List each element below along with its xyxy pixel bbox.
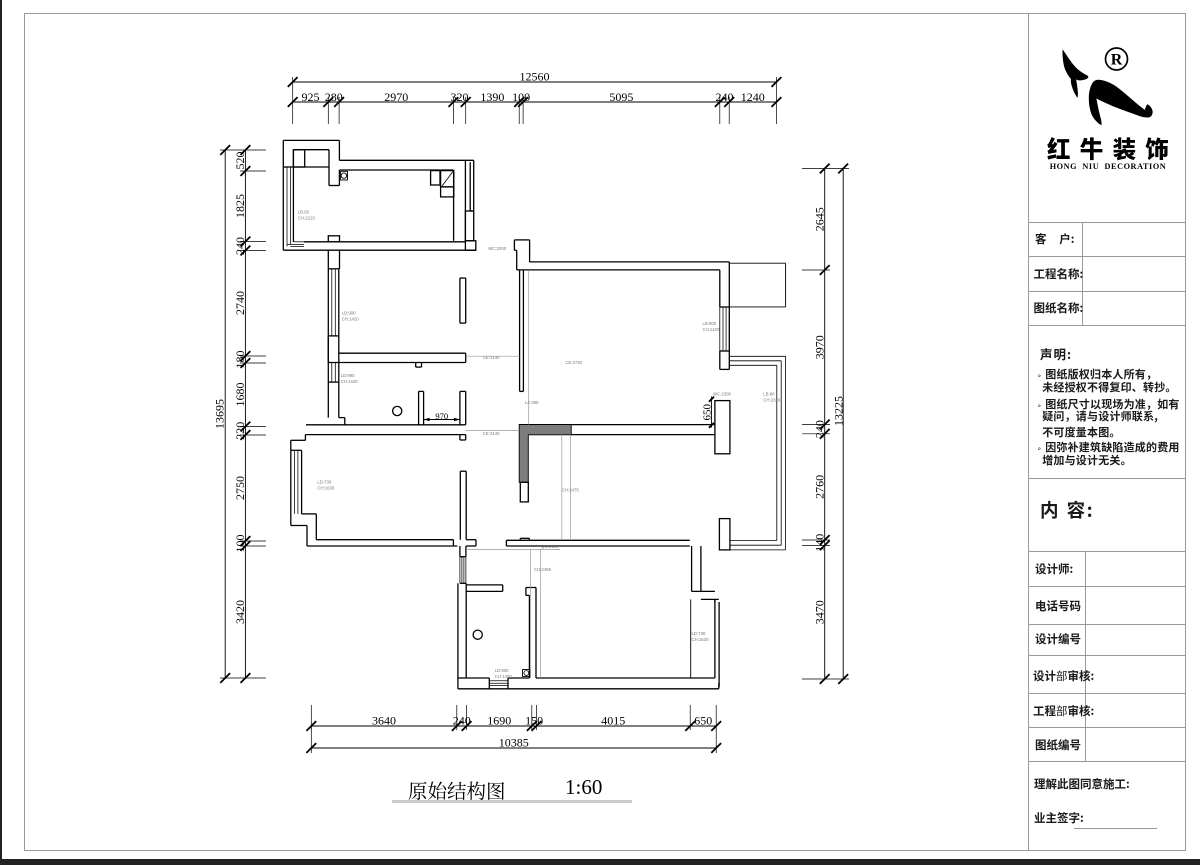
svg-text:3640: 3640 (372, 714, 396, 728)
svg-text:4015: 4015 (601, 714, 625, 728)
svg-text:CH:1400: CH:1400 (495, 674, 513, 679)
svg-text:220: 220 (233, 422, 247, 440)
svg-text:280: 280 (325, 90, 343, 104)
svg-text:520: 520 (233, 152, 247, 170)
svg-text:LB:90: LB:90 (763, 392, 775, 397)
svg-text:1240: 1240 (741, 90, 765, 104)
svg-text:100: 100 (233, 535, 247, 553)
svg-text:WC:2300: WC:2300 (713, 392, 732, 397)
svg-text:CH:2475: CH:2475 (562, 488, 580, 493)
svg-text:180: 180 (233, 351, 247, 369)
svg-text:CH:1420: CH:1420 (703, 327, 721, 332)
svg-text:3470: 3470 (813, 600, 827, 624)
svg-text:925: 925 (302, 90, 320, 104)
svg-text:CH:2210: CH:2210 (298, 216, 316, 221)
svg-text:140: 140 (813, 534, 827, 552)
svg-text:3970: 3970 (813, 335, 827, 359)
svg-text:CH:1420: CH:1420 (342, 317, 360, 322)
svg-text:100: 100 (512, 90, 530, 104)
svg-text:CH:1630: CH:1630 (317, 485, 335, 490)
svg-text:CH:1420: CH:1420 (341, 379, 359, 384)
svg-text:650: 650 (694, 714, 712, 728)
svg-text:2750: 2750 (233, 476, 247, 500)
svg-text:WC:2000: WC:2000 (488, 246, 507, 251)
svg-text:1690: 1690 (487, 714, 511, 728)
svg-text:LD:730: LD:730 (317, 479, 331, 484)
svg-text:QC:2130: QC:2130 (541, 544, 559, 549)
svg-text:650: 650 (702, 404, 714, 421)
svg-text:10385: 10385 (499, 736, 529, 750)
svg-text:150: 150 (525, 714, 543, 728)
svg-text:3420: 3420 (233, 600, 247, 624)
svg-text:240: 240 (813, 420, 827, 438)
svg-text:CE:3140: CE:3140 (483, 431, 500, 436)
svg-text:5095: 5095 (609, 90, 633, 104)
svg-text:CE:2730: CE:2730 (565, 360, 582, 365)
svg-text:LD:900: LD:900 (342, 311, 356, 316)
svg-text:240: 240 (233, 237, 247, 255)
svg-text:LB:50: LB:50 (298, 210, 310, 215)
svg-text:320: 320 (451, 90, 469, 104)
svg-text:2740: 2740 (233, 291, 247, 315)
svg-text:LD:730: LD:730 (692, 631, 706, 636)
svg-text:13225: 13225 (832, 396, 846, 426)
svg-text:240: 240 (453, 714, 471, 728)
svg-text:LD:990: LD:990 (341, 373, 355, 378)
svg-text:2760: 2760 (813, 475, 827, 499)
svg-text:970: 970 (435, 411, 448, 421)
svg-text:1825: 1825 (233, 194, 247, 218)
svg-text:CH:2495: CH:2495 (534, 567, 552, 572)
svg-text:240: 240 (716, 90, 734, 104)
svg-text:12560: 12560 (520, 70, 550, 84)
svg-text:LD:900: LD:900 (495, 668, 509, 673)
svg-text:LB:900: LB:900 (703, 321, 717, 326)
svg-text:1680: 1680 (233, 383, 247, 407)
svg-text:1390: 1390 (480, 90, 504, 104)
svg-text:CH:2320: CH:2320 (763, 398, 781, 403)
svg-text:CE:2140: CE:2140 (483, 355, 500, 360)
svg-text:13695: 13695 (213, 399, 227, 429)
svg-text:LA:380: LA:380 (525, 400, 539, 405)
svg-text:2645: 2645 (813, 207, 827, 231)
svg-text:CH:1630: CH:1630 (692, 637, 710, 642)
svg-text:2970: 2970 (384, 90, 408, 104)
